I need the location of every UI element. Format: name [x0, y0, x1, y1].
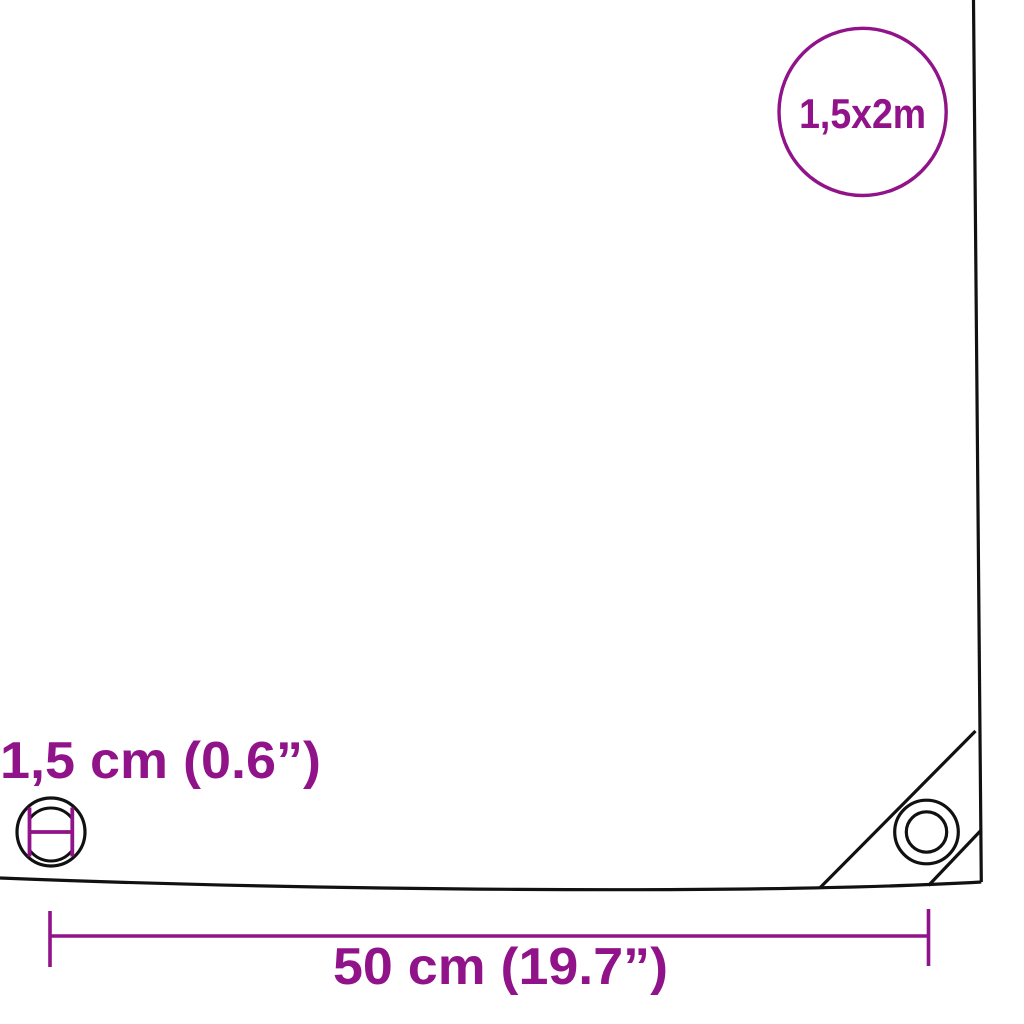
- svg-text:1,5 cm (0.6”): 1,5 cm (0.6”): [0, 732, 321, 790]
- svg-text:1,5x2m: 1,5x2m: [799, 90, 926, 137]
- svg-text:50 cm (19.7”): 50 cm (19.7”): [333, 938, 668, 996]
